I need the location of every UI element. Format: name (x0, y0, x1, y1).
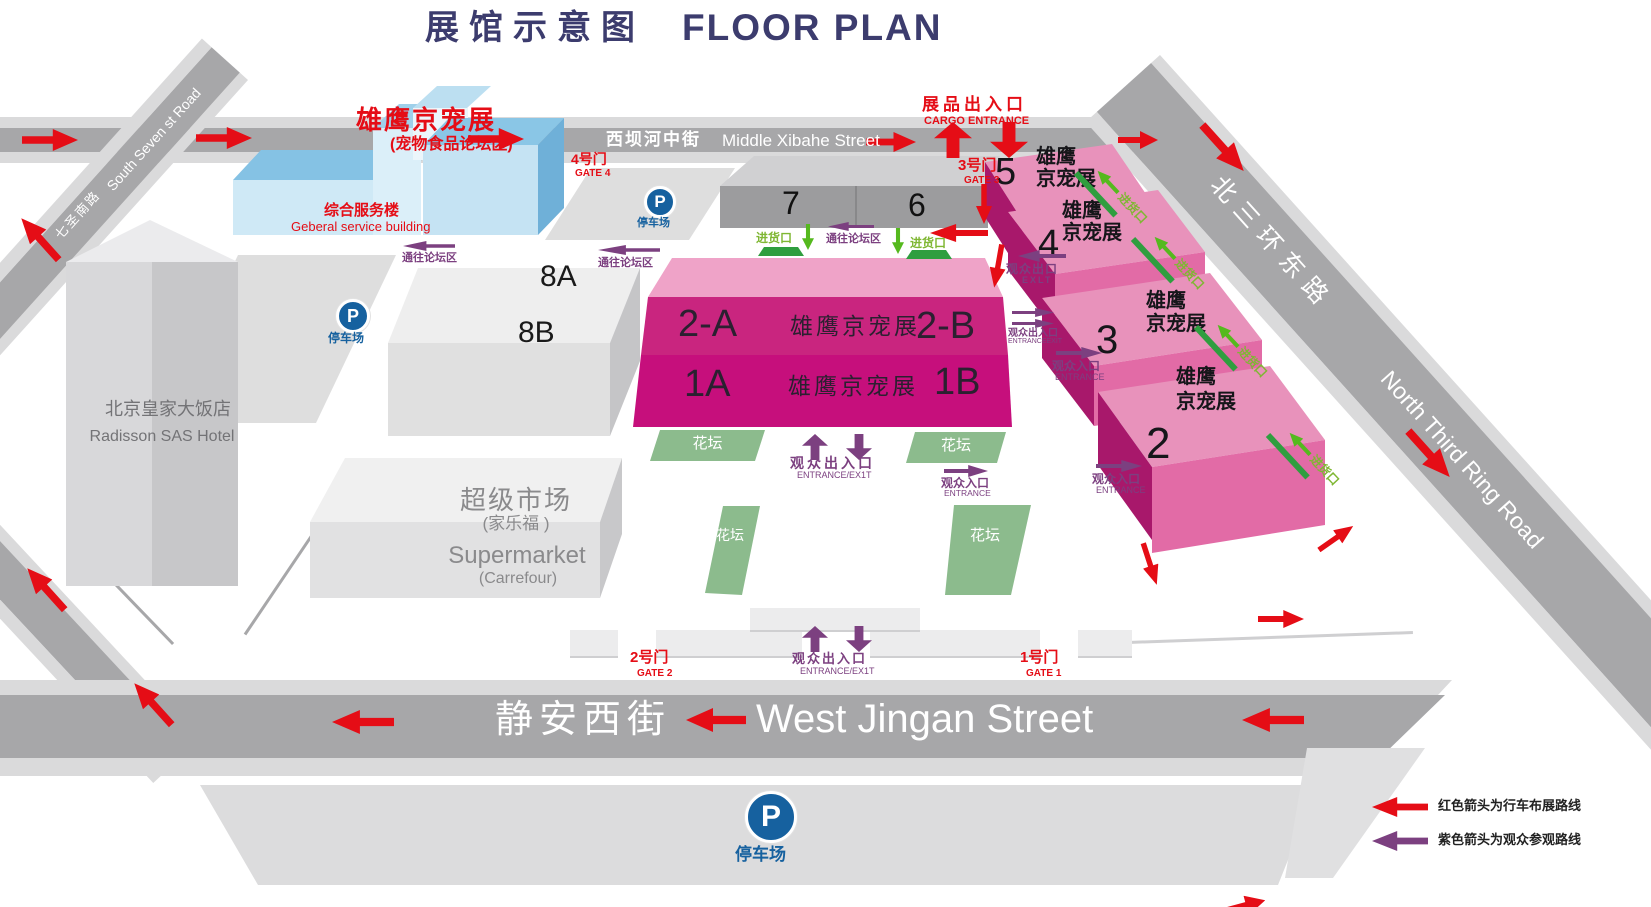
visitor-entrance-label-en: ENTRANCE (944, 489, 991, 498)
walkway (656, 630, 802, 658)
jingan-street-name-zh: 静安西街 (495, 700, 671, 742)
hall2b-label: 2-B (916, 306, 975, 348)
flowerbed-label: 花坛 (950, 528, 1020, 545)
hall8-roof (388, 268, 640, 343)
goods-entrance-label: 进货口 (910, 237, 946, 250)
walkway (870, 630, 1040, 658)
visitor-exit-label-en: EXLT (1022, 276, 1052, 286)
service-building-brand: 雄鹰京宠展 (356, 106, 496, 135)
to-forum-label: 通往论坛区 (598, 257, 653, 269)
center-brand-2: 雄鹰京宠展 (790, 314, 920, 339)
jingan-road-edge-bottom (0, 758, 1390, 776)
walkway (1078, 630, 1132, 658)
center-hall-roof (645, 258, 1005, 297)
walkway-entrance-canopy (750, 608, 920, 632)
hall8-face (388, 343, 610, 436)
hall5-brand-line1: 雄鹰 (1036, 146, 1076, 168)
cargo-entrance-label-zh: 展品出入口 (922, 96, 1027, 115)
parking-icon: P (336, 299, 370, 333)
visitor-entrance-label-en: ENTRANCE (1055, 373, 1105, 383)
supermarket-name-zh: 超级市场 (446, 486, 586, 515)
forum-arrow-icon (403, 241, 455, 251)
hall7-label: 7 (782, 186, 800, 221)
page-title-zh: 展馆示意图 (425, 10, 645, 47)
supermarket-name-en-sub: (Carrefour) (448, 570, 588, 588)
parking-area-gate4 (545, 168, 735, 240)
hall3-brand-line1: 雄鹰 (1146, 290, 1186, 312)
hall6-label: 6 (908, 188, 926, 223)
jingan-road (0, 695, 1448, 758)
gate1-label-en: GATE 1 (1026, 668, 1061, 679)
visitor-entrance-exit-label-zh: 观众出入口 (792, 652, 867, 666)
to-forum-label: 通往论坛区 (402, 252, 457, 264)
xibahe-street-name-en: Middle Xibahe Street (722, 132, 880, 151)
hall4-brand-line1: 雄鹰 (1062, 200, 1102, 222)
flowerbed-label: 花坛 (660, 436, 755, 453)
hotel-name-zh: 北京皇家大饭店 (92, 400, 244, 420)
flowerbed (705, 506, 760, 595)
hall4-brand-line2: 京宠展 (1062, 222, 1122, 244)
to-forum-label: 通往论坛区 (826, 233, 881, 245)
southeast-pavement (1285, 748, 1425, 878)
hall8b-label: 8B (518, 316, 555, 349)
service-building-name-zh: 综合服务楼 (324, 203, 399, 220)
parking-icon: P (644, 186, 676, 218)
legend-purple-text: 紫色箭头为观众参观路线 (1438, 833, 1581, 847)
goods-entrance-label: 进货口 (756, 232, 792, 245)
hall2-num: 2 (1146, 420, 1170, 468)
hall2a-label: 2-A (678, 304, 737, 346)
path-line (244, 524, 320, 635)
gate4-label-zh: 4号门 (571, 152, 607, 167)
hall76-divider (855, 186, 857, 228)
flowerbed-label: 花坛 (912, 438, 1000, 455)
hall3-num: 3 (1096, 318, 1118, 362)
flowerbed-label: 花坛 (705, 528, 755, 543)
cargo-entrance-label-en: CARGO ENTRANCE (924, 115, 1029, 127)
route-arrow-icon (1258, 610, 1304, 628)
flowerbed (945, 505, 1031, 595)
supermarket-name-en: Supermarket (442, 543, 592, 569)
parking-label: 停车场 (637, 217, 670, 229)
parking-label: 停车场 (328, 332, 364, 345)
hall1b-label: 1B (934, 362, 980, 404)
hall2-brand-line1: 雄鹰 (1176, 366, 1216, 388)
hall5-num: 5 (995, 152, 1016, 194)
visitor-entrance-exit-label-en: ENTRANCE/EX1T (797, 471, 872, 481)
page-title-en: FLOOR PLAN (682, 8, 942, 49)
visitor-entrance-label-en: ENTRANCE (1096, 486, 1146, 496)
walkway (570, 630, 618, 658)
route-arrow-icon (1220, 891, 1268, 907)
legend-red-text: 红色箭头为行车布展路线 (1438, 799, 1581, 813)
hall2-brand-line2: 京宠展 (1176, 391, 1236, 413)
hotel-name-en: Radisson SAS Hotel (78, 428, 246, 446)
hall76-face (720, 186, 988, 228)
center-brand-1: 雄鹰京宠展 (788, 374, 918, 399)
hall4-num: 4 (1038, 224, 1059, 266)
hall8a-label: 8A (540, 260, 577, 293)
path-line (1128, 631, 1413, 644)
hall1a-label: 1A (684, 364, 730, 406)
goods-dock (906, 250, 952, 259)
parking-icon: P (745, 791, 797, 843)
jingan-street-name-en: West Jingan Street (756, 697, 1093, 741)
forum-arrow-icon (598, 245, 660, 255)
goods-arrow-down-icon (892, 228, 904, 254)
floor-plan-map: 北三环东路 North Third Ring Road South Seven … (0, 0, 1651, 907)
gate3-label-zh: 3号门 (958, 158, 996, 175)
parking-label: 停车场 (735, 846, 786, 865)
gate2-label-zh: 2号门 (630, 650, 668, 667)
jingan-road-edge-top (0, 680, 1455, 695)
service-building-wingC-face (423, 145, 538, 235)
hotel-face-right (152, 262, 238, 586)
legend-purple-arrow-icon (1372, 831, 1428, 851)
xibahe-street-name-zh: 西坝河中街 (606, 131, 701, 150)
goods-dock (758, 247, 804, 256)
visitor-entrance-exit-label-en: ENTRANCE/EX1T (800, 667, 875, 677)
gate1-label-zh: 1号门 (1020, 650, 1058, 667)
hotel-face-left (66, 262, 152, 586)
gate3-label-en: GATE 3 (964, 175, 999, 186)
visitor-entrance-exit-small-en: ENTRANCEEXIT (1008, 338, 1062, 346)
supermarket-name-zh-sub: (家乐福 ) (446, 515, 586, 534)
service-building-name-en: Geberal service building (291, 220, 430, 234)
gate2-label-en: GATE 2 (637, 668, 672, 679)
gate4-label-en: GATE 4 (575, 168, 610, 179)
